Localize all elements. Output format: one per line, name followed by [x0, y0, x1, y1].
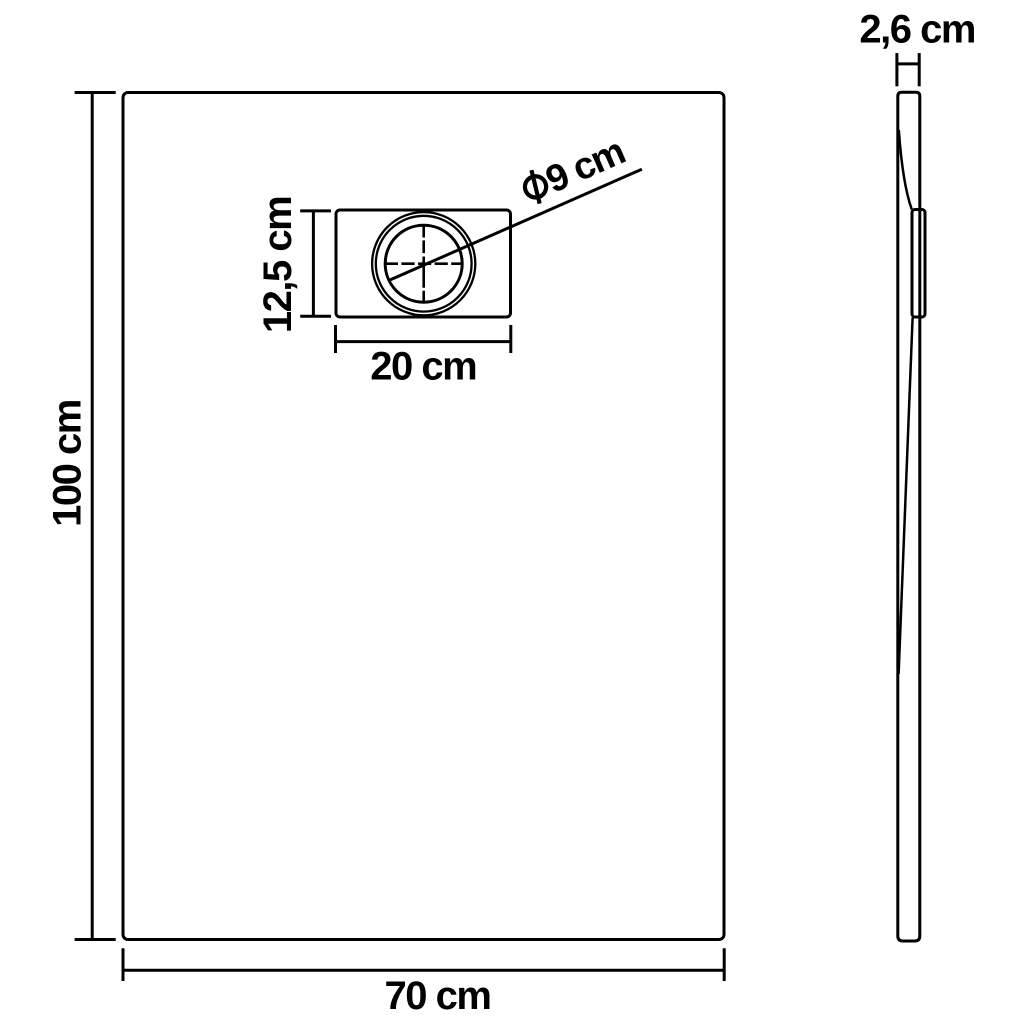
svg-text:70 cm: 70 cm [385, 974, 491, 1018]
svg-text:100 cm: 100 cm [46, 400, 90, 527]
svg-text:20 cm: 20 cm [370, 345, 476, 389]
svg-text:12,5 cm: 12,5 cm [256, 197, 300, 333]
svg-text:2,6 cm: 2,6 cm [859, 7, 975, 51]
